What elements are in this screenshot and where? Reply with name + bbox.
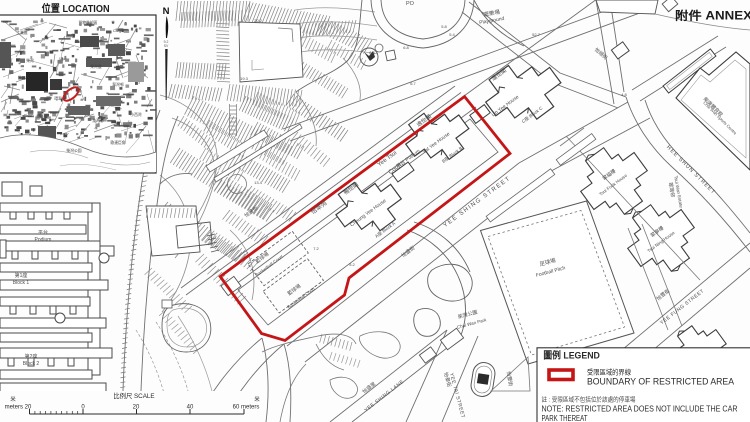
svg-text:位置 LOCATION: 位置 LOCATION — [42, 2, 110, 15]
svg-text:漁灣邨: 漁灣邨 — [92, 118, 104, 123]
svg-text:翠灣邨: 翠灣邨 — [112, 82, 124, 87]
svg-text:歌連臣角: 歌連臣角 — [110, 140, 125, 145]
svg-text:8.8: 8.8 — [369, 50, 375, 55]
svg-text:米: 米 — [254, 395, 260, 403]
svg-text:圖例 LEGEND: 圖例 LEGEND — [543, 350, 600, 362]
svg-text:5.4: 5.4 — [449, 32, 455, 37]
svg-text:60 meters: 60 meters — [233, 405, 260, 411]
svg-text:5.2: 5.2 — [349, 262, 355, 267]
svg-text:meters 20: meters 20 — [5, 405, 32, 411]
svg-text:貨物裝卸區: 貨物裝卸區 — [79, 20, 98, 25]
svg-text:6.8: 6.8 — [403, 45, 409, 50]
svg-text:13.4: 13.4 — [254, 180, 263, 185]
svg-text:Block 1: Block 1 — [13, 280, 30, 286]
svg-text:平台: 平台 — [38, 229, 48, 236]
svg-text:N: N — [163, 6, 170, 17]
svg-text:小西灣: 小西灣 — [130, 112, 142, 117]
svg-text:Podium: Podium — [35, 237, 52, 243]
svg-text:52.7: 52.7 — [532, 32, 541, 37]
svg-text:20.2: 20.2 — [254, 18, 263, 23]
svg-text:Block 2: Block 2 — [23, 361, 40, 367]
svg-text:受限區域的界線: 受限區域的界線 — [587, 368, 631, 377]
svg-text:PO: PO — [406, 1, 415, 7]
svg-text:BOUNDARY OF RESTRICTED AREA: BOUNDARY OF RESTRICTED AREA — [587, 377, 734, 387]
svg-text:柴灣道: 柴灣道 — [90, 64, 102, 69]
svg-text:興華邨: 興華邨 — [36, 114, 48, 119]
svg-text:第2座: 第2座 — [25, 353, 38, 360]
svg-text:5.8: 5.8 — [441, 24, 447, 29]
svg-text:6.7: 6.7 — [410, 81, 416, 86]
svg-text:SV: SV — [164, 44, 169, 48]
svg-text:註 : 受限區域不包括位於該處的停車場: 註 : 受限區域不包括位於該處的停車場 — [542, 394, 637, 403]
svg-text:19.3: 19.3 — [240, 76, 249, 81]
svg-text:4.8: 4.8 — [621, 92, 627, 97]
svg-text:Cargo: Cargo — [113, 29, 123, 33]
svg-text:附件 ANNEX: 附件 ANNEX — [675, 9, 750, 23]
svg-text:比例尺 SCALE: 比例尺 SCALE — [113, 391, 154, 400]
svg-text:工業區: 工業區 — [16, 30, 28, 35]
svg-text:NOTE: RESTRICTED AREA DOES NOT: NOTE: RESTRICTED AREA DOES NOT INCLUDE T… — [542, 404, 738, 414]
svg-text:柴灣公園: 柴灣公園 — [66, 148, 81, 153]
svg-text:PARK THEREAT: PARK THEREAT — [542, 413, 588, 422]
svg-text:米: 米 — [10, 395, 16, 403]
svg-text:7.2: 7.2 — [313, 246, 319, 251]
svg-text:第1座: 第1座 — [15, 272, 28, 279]
svg-text:柴灣: 柴灣 — [26, 58, 34, 63]
